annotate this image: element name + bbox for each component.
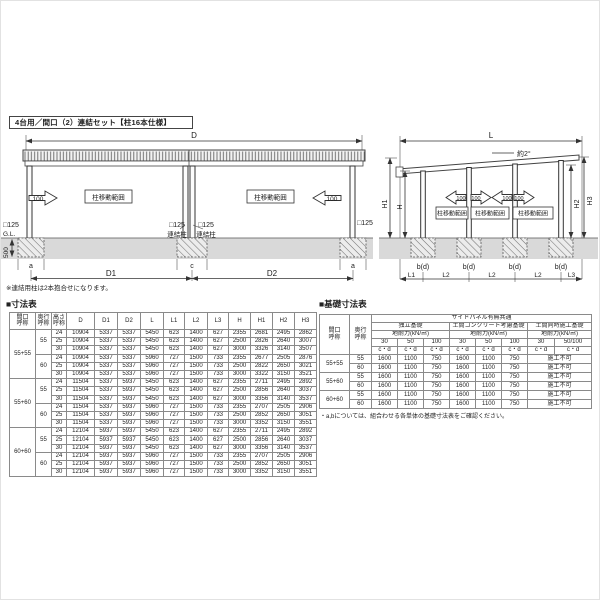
column-header: 高さ 呼称 [52, 313, 67, 330]
height-size-cell: 24 [52, 452, 67, 460]
dimension-value-cell: 2355 [229, 379, 251, 387]
dimension-value-cell: 727 [164, 420, 185, 428]
dimension-value-cell: 12104 [67, 436, 95, 444]
dimension-value-cell: 5450 [141, 346, 164, 354]
dimension-value-cell: 10904 [67, 370, 95, 378]
foundation-table-row: 55+60551600110075016001100750施工不可 [320, 373, 592, 382]
not-applicable-cell: 施工不可 [528, 391, 592, 400]
dimension-value-cell: 5937 [118, 444, 141, 452]
bearing-capacity-header: 地耐力(kN/㎡) [528, 331, 592, 339]
dimension-value-cell: 3150 [273, 469, 295, 477]
dimension-value-cell: 2640 [273, 436, 295, 444]
dimension-value-cell: 2500 [229, 436, 251, 444]
dim-h3-label: H3 [587, 196, 594, 205]
column-header: L2 [185, 313, 208, 330]
dimension-value-cell: 2355 [229, 403, 251, 411]
dimension-value-cell: 2500 [229, 338, 251, 346]
dimension-value-cell: 1500 [185, 370, 208, 378]
pillar-range-box: 柱移動範囲 [513, 207, 553, 219]
dimension-value-cell: 727 [164, 370, 185, 378]
height-size-cell: 30 [52, 420, 67, 428]
foundation-value-cell: 1100 [476, 364, 502, 373]
dimension-value-cell: 10904 [67, 354, 95, 362]
dimension-value-cell: 733 [208, 469, 229, 477]
depth-size-cell: 55 [36, 379, 52, 404]
dim-table-row: 3011504533759375960727150073330003352315… [10, 420, 317, 428]
dimension-value-cell: 5960 [141, 469, 164, 477]
dimension-value-cell: 3140 [273, 346, 295, 354]
l-dimensions-bottom: L1 L2 L2 L2 L3 [400, 272, 582, 282]
foundation-value-cell: 1600 [450, 364, 476, 373]
height-size-cell: 25 [52, 411, 67, 419]
dimension-value-cell: 3507 [295, 346, 317, 354]
dimension-value-cell: 2495 [273, 428, 295, 436]
dimension-value-cell: 2355 [229, 354, 251, 362]
dimension-value-cell: 1400 [185, 395, 208, 403]
pillar-range-box: 柱移動範囲 [471, 207, 509, 219]
height-size-cell: 30 [52, 469, 67, 477]
foundation-value-cell: 1600 [372, 391, 398, 400]
column-header: H [229, 313, 251, 330]
dimension-value-cell: 623 [164, 436, 185, 444]
dimension-value-cell: 5337 [118, 370, 141, 378]
dimension-value-cell: 627 [208, 346, 229, 354]
dimension-value-cell: 733 [208, 420, 229, 428]
pillar-range-label: 柱移動範囲 [518, 210, 548, 218]
dimension-value-cell: 627 [208, 444, 229, 452]
dim-table-row: 2510904533753375960727150073325002822265… [10, 362, 317, 370]
foundation-value-cell: 1600 [372, 364, 398, 373]
dim-h2-label: H2 [574, 199, 581, 208]
dimension-value-cell: 5450 [141, 444, 164, 452]
dimension-value-cell: 12104 [67, 444, 95, 452]
dim-d-label: D [191, 131, 197, 140]
height-size-cell: 30 [52, 395, 67, 403]
dimension-value-cell: 623 [164, 395, 185, 403]
foundation-value-cell: 1100 [398, 355, 424, 364]
dim-l2-label: L2 [442, 272, 450, 279]
dimension-value-cell: 1400 [185, 387, 208, 395]
dimension-value-cell: 5337 [118, 330, 141, 338]
unit-header: c・d [424, 347, 450, 355]
foundation-value-cell: 750 [424, 382, 450, 391]
dimension-value-cell: 10904 [67, 338, 95, 346]
strength-header: 30 [450, 339, 476, 347]
dimension-value-cell: 1400 [185, 436, 208, 444]
dimension-value-cell: 3000 [229, 420, 251, 428]
dim-table-row: 55+5555241090453375337545062314006272355… [10, 330, 317, 338]
dimension-value-cell: 5337 [118, 362, 141, 370]
dimension-value-cell: 733 [208, 403, 229, 411]
dimension-value-cell: 627 [208, 387, 229, 395]
dimension-value-cell: 2906 [295, 403, 317, 411]
dimension-value-cell: 3000 [229, 370, 251, 378]
dimension-value-cell: 627 [208, 338, 229, 346]
dimension-value-cell: 627 [208, 436, 229, 444]
height-size-cell: 24 [52, 403, 67, 411]
dimension-value-cell: 727 [164, 461, 185, 469]
dimension-value-cell: 5937 [95, 461, 118, 469]
dimension-value-cell: 2677 [251, 354, 273, 362]
foundation-table: 間口 呼称 奥行 呼称 サイドパネル有無共通 独立基礎 土間コンクリート考慮基礎… [319, 314, 592, 409]
dimension-value-cell: 12104 [67, 469, 95, 477]
dimension-value-cell: 1400 [185, 338, 208, 346]
dimension-value-cell: 2495 [273, 330, 295, 338]
dimension-value-cell: 5960 [141, 420, 164, 428]
dimension-value-cell: 623 [164, 346, 185, 354]
height-size-cell: 25 [52, 362, 67, 370]
dimension-d: D [26, 131, 362, 150]
foundation-value-cell: 1600 [450, 382, 476, 391]
movement-arrow-left-icon: 100 [446, 191, 466, 204]
dimension-value-cell: 2852 [251, 461, 273, 469]
dimension-value-cell: 2500 [229, 387, 251, 395]
foundation-value-cell: 1100 [476, 382, 502, 391]
foundation-value-cell: 750 [424, 355, 450, 364]
dimension-value-cell: 5937 [118, 461, 141, 469]
foundation-value-cell: 1600 [372, 355, 398, 364]
dimension-value-cell: 5960 [141, 354, 164, 362]
dimension-value-cell: 5337 [95, 362, 118, 370]
dimension-value-cell: 3037 [295, 387, 317, 395]
dim-table-row: 6024121045937593759607271500733235527072… [10, 452, 317, 460]
movement-distance-label: 100 [33, 196, 44, 203]
dimension-value-cell: 2355 [229, 428, 251, 436]
dimension-value-cell: 5337 [95, 370, 118, 378]
dimension-value-cell: 5337 [95, 411, 118, 419]
foundation-value-cell: 750 [424, 391, 450, 400]
dimension-value-cell: 2650 [273, 411, 295, 419]
foundation-type-header: 独立基礎 [372, 323, 450, 331]
dim-table-row: 2511504533759375450623140062725002856264… [10, 387, 317, 395]
foundation-value-cell: 1600 [450, 373, 476, 382]
dimension-value-cell: 5937 [118, 452, 141, 460]
dimension-value-cell: 1500 [185, 411, 208, 419]
dimension-value-cell: 5337 [95, 330, 118, 338]
dimension-value-cell: 2640 [273, 387, 295, 395]
dimension-value-cell: 727 [164, 403, 185, 411]
dimension-value-cell: 627 [208, 330, 229, 338]
foundation-value-cell: 1100 [476, 391, 502, 400]
not-applicable-cell: 施工不可 [528, 373, 592, 382]
dimension-value-cell: 5450 [141, 387, 164, 395]
dim-table-row: 2512104593759375960727150073325002852265… [10, 461, 317, 469]
dim-l-label: L [489, 131, 494, 140]
dim-table-row: 6024109045337533759607271500733235526772… [10, 354, 317, 362]
dimension-value-cell: 11504 [67, 411, 95, 419]
strength-header: 30 [528, 339, 555, 347]
dimension-value-cell: 5337 [95, 338, 118, 346]
dimension-value-cell: 5450 [141, 330, 164, 338]
dimension-value-cell: 5450 [141, 436, 164, 444]
side-panel-header: サイドパネル有無共通 [372, 315, 592, 323]
dimension-value-cell: 5960 [141, 362, 164, 370]
dimension-value-cell: 1500 [185, 461, 208, 469]
depth-size-cell: 55 [36, 428, 52, 453]
foundation-table-title: ■基礎寸法表 [319, 298, 367, 310]
dimension-value-cell: 2505 [273, 354, 295, 362]
unit-header: c・d [372, 347, 398, 355]
dimension-value-cell: 3150 [273, 420, 295, 428]
height-size-cell: 30 [52, 444, 67, 452]
dimension-value-cell: 5337 [118, 354, 141, 362]
dimension-value-cell: 5450 [141, 379, 164, 387]
dim-h-label: H [397, 204, 404, 209]
roof-slope-label: 約2° [492, 149, 531, 158]
dimension-value-cell: 5960 [141, 370, 164, 378]
dimension-value-cell: 2711 [251, 379, 273, 387]
column-header: H1 [251, 313, 273, 330]
column-header: D2 [118, 313, 141, 330]
dimension-value-cell: 5937 [95, 452, 118, 460]
dim-table-row: 2511504533759375960727150073325002852265… [10, 411, 317, 419]
opening-size-cell: 60+60 [10, 428, 36, 477]
movement-arrow-right-icon: 100 [29, 191, 57, 205]
unit-header: c・d [450, 347, 476, 355]
dimension-value-cell: 5337 [95, 387, 118, 395]
depth-size-cell: 60 [350, 382, 372, 391]
dimension-value-cell: 5337 [95, 346, 118, 354]
connecting-pillar-note: ※連結用柱は2本抱合せになります。 [6, 282, 112, 292]
dimension-value-cell: 3352 [251, 420, 273, 428]
foundation-table-row: 601600110075016001100750施工不可 [320, 364, 592, 373]
dim-table-row: 3011504533759375450623140062730003356314… [10, 395, 317, 403]
dimension-value-cell: 5450 [141, 395, 164, 403]
foundation-table-note: ・a,bについては、組合わせる各単体の基礎寸法表をご確認ください。 [320, 411, 508, 420]
strength-header: 30 [372, 339, 398, 347]
dimension-value-cell: 5337 [95, 354, 118, 362]
foundation-value-cell: 1100 [398, 382, 424, 391]
pillar-size-label: □125 [169, 222, 185, 229]
dim-table-row: 60+6055241210459375937545062314006272355… [10, 428, 317, 436]
depth-size-cell: 55 [350, 391, 372, 400]
foundation-table-row: 601600110075016001100750施工不可 [320, 400, 592, 409]
height-size-cell: 24 [52, 354, 67, 362]
dimension-value-cell: 3000 [229, 346, 251, 354]
dimension-value-cell: 11504 [67, 387, 95, 395]
dimension-value-cell: 2355 [229, 330, 251, 338]
movement-arrow-left-icon: 100 [313, 191, 341, 205]
dimension-value-cell: 2892 [295, 428, 317, 436]
dimension-value-cell: 3000 [229, 395, 251, 403]
movement-distance-label: 100 [327, 196, 338, 203]
unit-header: c・d [398, 347, 424, 355]
dimension-value-cell: 3537 [295, 444, 317, 452]
column-header: L1 [164, 313, 185, 330]
height-size-cell: 25 [52, 461, 67, 469]
dimension-value-cell: 733 [208, 452, 229, 460]
foundation-value-cell: 1100 [476, 400, 502, 409]
foundation-value-cell: 1600 [450, 400, 476, 409]
dimension-value-cell: 2876 [295, 354, 317, 362]
dimension-value-cell: 623 [164, 428, 185, 436]
foundation-value-cell: 1600 [372, 400, 398, 409]
dim-bd-label: b(d) [509, 264, 521, 271]
height-size-cell: 30 [52, 346, 67, 354]
dimension-value-cell: 5937 [95, 436, 118, 444]
dimension-value-cell: 727 [164, 452, 185, 460]
foundation-value-cell: 750 [424, 373, 450, 382]
dimension-value-cell: 11504 [67, 403, 95, 411]
dim-l2-label: L2 [488, 272, 496, 279]
pillars-side [421, 161, 564, 239]
dimension-value-cell: 3326 [251, 346, 273, 354]
dimension-value-cell: 623 [164, 387, 185, 395]
not-applicable-cell: 施工不可 [528, 382, 592, 391]
dimension-value-cell: 3021 [295, 362, 317, 370]
pillar-range-label: 柱移動範囲 [475, 210, 505, 218]
dim-table-title: ■寸法表 [6, 298, 37, 310]
strength-header: 50 [398, 339, 424, 347]
unit-header: c・d [528, 347, 555, 355]
dimension-value-cell: 3551 [295, 420, 317, 428]
dimension-value-cell: 1400 [185, 330, 208, 338]
dimension-value-cell: 2862 [295, 330, 317, 338]
dimension-value-cell: 1500 [185, 420, 208, 428]
foundation-value-cell: 750 [424, 364, 450, 373]
dimension-value-cell: 3150 [273, 370, 295, 378]
dimension-value-cell: 733 [208, 354, 229, 362]
dimension-value-cell: 3140 [273, 444, 295, 452]
dimension-value-cell: 1500 [185, 362, 208, 370]
dims-bottom-front: a c a D1 D2 [18, 259, 366, 281]
foundation-value-cell: 1100 [398, 400, 424, 409]
bearing-capacity-header: 地耐力(kN/㎡) [450, 331, 528, 339]
dimension-value-cell: 3521 [295, 370, 317, 378]
column-header: H2 [273, 313, 295, 330]
ground-level-label: G.L. [3, 231, 15, 238]
height-size-cell: 24 [52, 428, 67, 436]
dimension-table: 間口 呼称 奥行 呼称 高さ 呼称 D D1 D2 L L1 L2 L3 H H… [9, 312, 317, 477]
foundation-value-cell: 750 [502, 355, 528, 364]
dim-table-row: 3010904533753375960727150073330003322315… [10, 370, 317, 378]
pillar-range-box: 柱移動範囲 [436, 207, 468, 219]
dimension-value-cell: 1500 [185, 469, 208, 477]
dim-table-row: 2510904533753375450623140062725002826264… [10, 338, 317, 346]
slope-angle-label: 約2° [517, 149, 531, 158]
column-header: 間口 呼称 [10, 313, 36, 330]
dim-table-row: 55+6055241150453375937545062314006272355… [10, 379, 317, 387]
dimension-value-cell: 2355 [229, 452, 251, 460]
dimension-value-cell: 11504 [67, 395, 95, 403]
front-elevation-drawing: D 100 100 [1, 129, 381, 287]
dimension-value-cell: 3051 [295, 411, 317, 419]
dimension-value-cell: 10904 [67, 330, 95, 338]
dim-table-row: 3010904533753375450623140062730003326314… [10, 346, 317, 354]
dimension-value-cell: 3000 [229, 444, 251, 452]
dimension-value-cell: 5337 [95, 420, 118, 428]
foundation-value-cell: 750 [502, 382, 528, 391]
movement-arrow-right-icon: 100 [471, 191, 491, 204]
foundation-value-cell: 1100 [398, 364, 424, 373]
not-applicable-cell: 施工不可 [528, 400, 592, 409]
dimension-value-cell: 1500 [185, 403, 208, 411]
column-header: D1 [95, 313, 118, 330]
dimension-value-cell: 727 [164, 354, 185, 362]
dimension-value-cell: 2852 [251, 411, 273, 419]
dimension-value-cell: 5937 [95, 428, 118, 436]
dimension-value-cell: 2681 [251, 330, 273, 338]
dim-bd-label: b(d) [463, 264, 475, 271]
movement-distance-label: 100 [502, 196, 511, 202]
bearing-capacity-header: 地耐力(kN/㎡) [372, 331, 450, 339]
foundation-table-row: 60+60551600110075016001100750施工不可 [320, 391, 592, 400]
foundation-value-cell: 1600 [450, 355, 476, 364]
dim-table-header-row: 間口 呼称 奥行 呼称 高さ 呼称 D D1 D2 L L1 L2 L3 H H… [10, 313, 317, 330]
dimension-value-cell: 2500 [229, 362, 251, 370]
dim-a-label: a [29, 263, 33, 270]
pillars-front [27, 166, 355, 238]
foundation-value-cell: 1100 [476, 373, 502, 382]
dim-h1-label: H1 [382, 199, 389, 208]
height-size-cell: 25 [52, 436, 67, 444]
column-header: 奥行 呼称 [36, 313, 52, 330]
dimension-value-cell: 3352 [251, 469, 273, 477]
dimension-value-cell: 733 [208, 362, 229, 370]
dimension-value-cell: 3356 [251, 395, 273, 403]
page-title: 4台用／間口（2）連結セット【柱16本仕様】 [9, 116, 193, 129]
dimension-value-cell: 727 [164, 469, 185, 477]
dimension-value-cell: 3000 [229, 469, 251, 477]
dimension-value-cell: 5337 [118, 338, 141, 346]
pillar-size-label: □125 [357, 220, 373, 227]
foundation-value-cell: 750 [502, 364, 528, 373]
dimension-value-cell: 5337 [95, 395, 118, 403]
dimension-value-cell: 733 [208, 461, 229, 469]
dimension-value-cell: 733 [208, 370, 229, 378]
dimension-value-cell: 3007 [295, 338, 317, 346]
dim-table-row: 6024115045337593759607271500733235527072… [10, 403, 317, 411]
dimension-value-cell: 5937 [118, 379, 141, 387]
dimension-value-cell: 5937 [118, 387, 141, 395]
foundation-value-cell: 1600 [372, 382, 398, 391]
dimension-value-cell: 12104 [67, 428, 95, 436]
foundation-value-cell: 1100 [398, 391, 424, 400]
depth-size-cell: 60 [36, 403, 52, 428]
dimension-value-cell: 2505 [273, 403, 295, 411]
unit-header: c・d [476, 347, 502, 355]
height-size-cell: 24 [52, 330, 67, 338]
height-size-cell: 25 [52, 338, 67, 346]
dimension-value-cell: 5937 [118, 411, 141, 419]
opening-size-cell: 55+60 [320, 373, 350, 391]
foundation-type-header: 土間同時施工基礎 [528, 323, 592, 331]
dimension-value-cell: 5937 [118, 420, 141, 428]
dimension-value-cell: 2892 [295, 379, 317, 387]
dimension-value-cell: 1400 [185, 346, 208, 354]
foundation-table-row: 601600110075016001100750施工不可 [320, 382, 592, 391]
strength-header: 100 [502, 339, 528, 347]
strength-header: 50/100 [555, 339, 592, 347]
opening-size-cell: 55+55 [320, 355, 350, 373]
pillar-size-label: □125 [3, 222, 19, 229]
dimension-value-cell: 3537 [295, 395, 317, 403]
dimension-value-cell: 5960 [141, 411, 164, 419]
dimension-value-cell: 727 [164, 362, 185, 370]
dimension-value-cell: 5937 [118, 403, 141, 411]
dimension-value-cell: 623 [164, 330, 185, 338]
dimension-value-cell: 10904 [67, 346, 95, 354]
dimension-value-cell: 12104 [67, 452, 95, 460]
dimension-value-cell: 3037 [295, 436, 317, 444]
column-header: D [67, 313, 95, 330]
foundation-value-cell: 750 [424, 400, 450, 409]
dimension-value-cell: 2711 [251, 428, 273, 436]
roof-front [23, 150, 365, 166]
pillar-range-label: 柱移動範囲 [254, 192, 287, 201]
dim-table-row: 2512104593759375450623140062725002856264… [10, 436, 317, 444]
dim-table-row: 3012104593759375450623140062730003356314… [10, 444, 317, 452]
